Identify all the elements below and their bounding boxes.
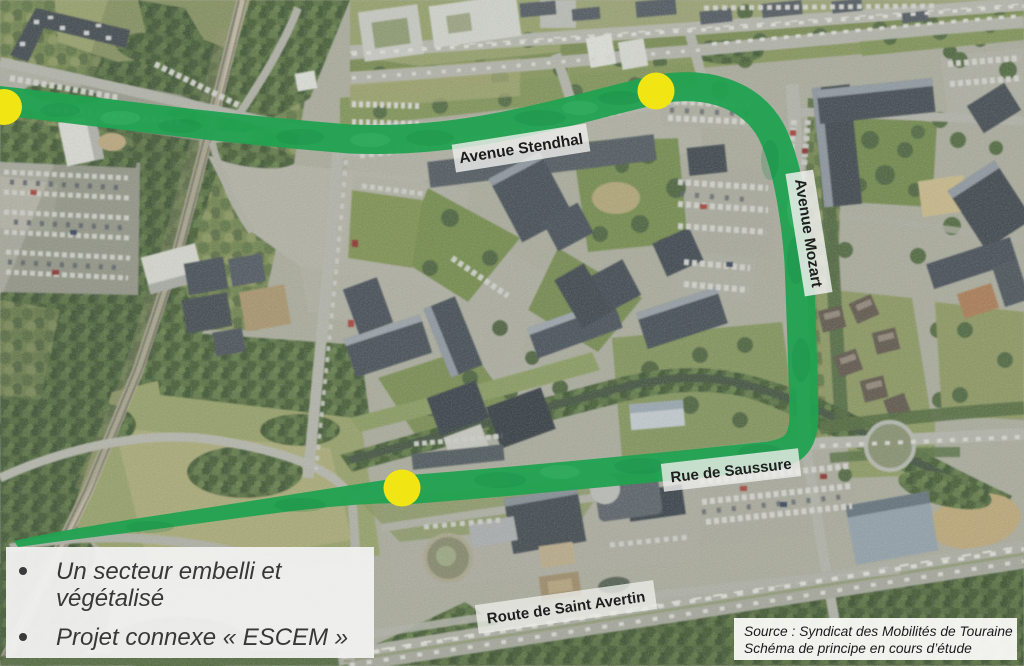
- svg-text:Un secteur embelli et: Un secteur embelli et: [56, 558, 283, 585]
- svg-text:Source : Syndicat des Mobilité: Source : Syndicat des Mobilités de Toura…: [744, 624, 1013, 639]
- svg-text:végétalisé: végétalisé: [56, 585, 164, 612]
- svg-text:Projet connexe « ESCEM »: Projet connexe « ESCEM »: [56, 624, 348, 651]
- svg-text:Schéma de principe en cours d’: Schéma de principe en cours d’étude: [744, 641, 972, 656]
